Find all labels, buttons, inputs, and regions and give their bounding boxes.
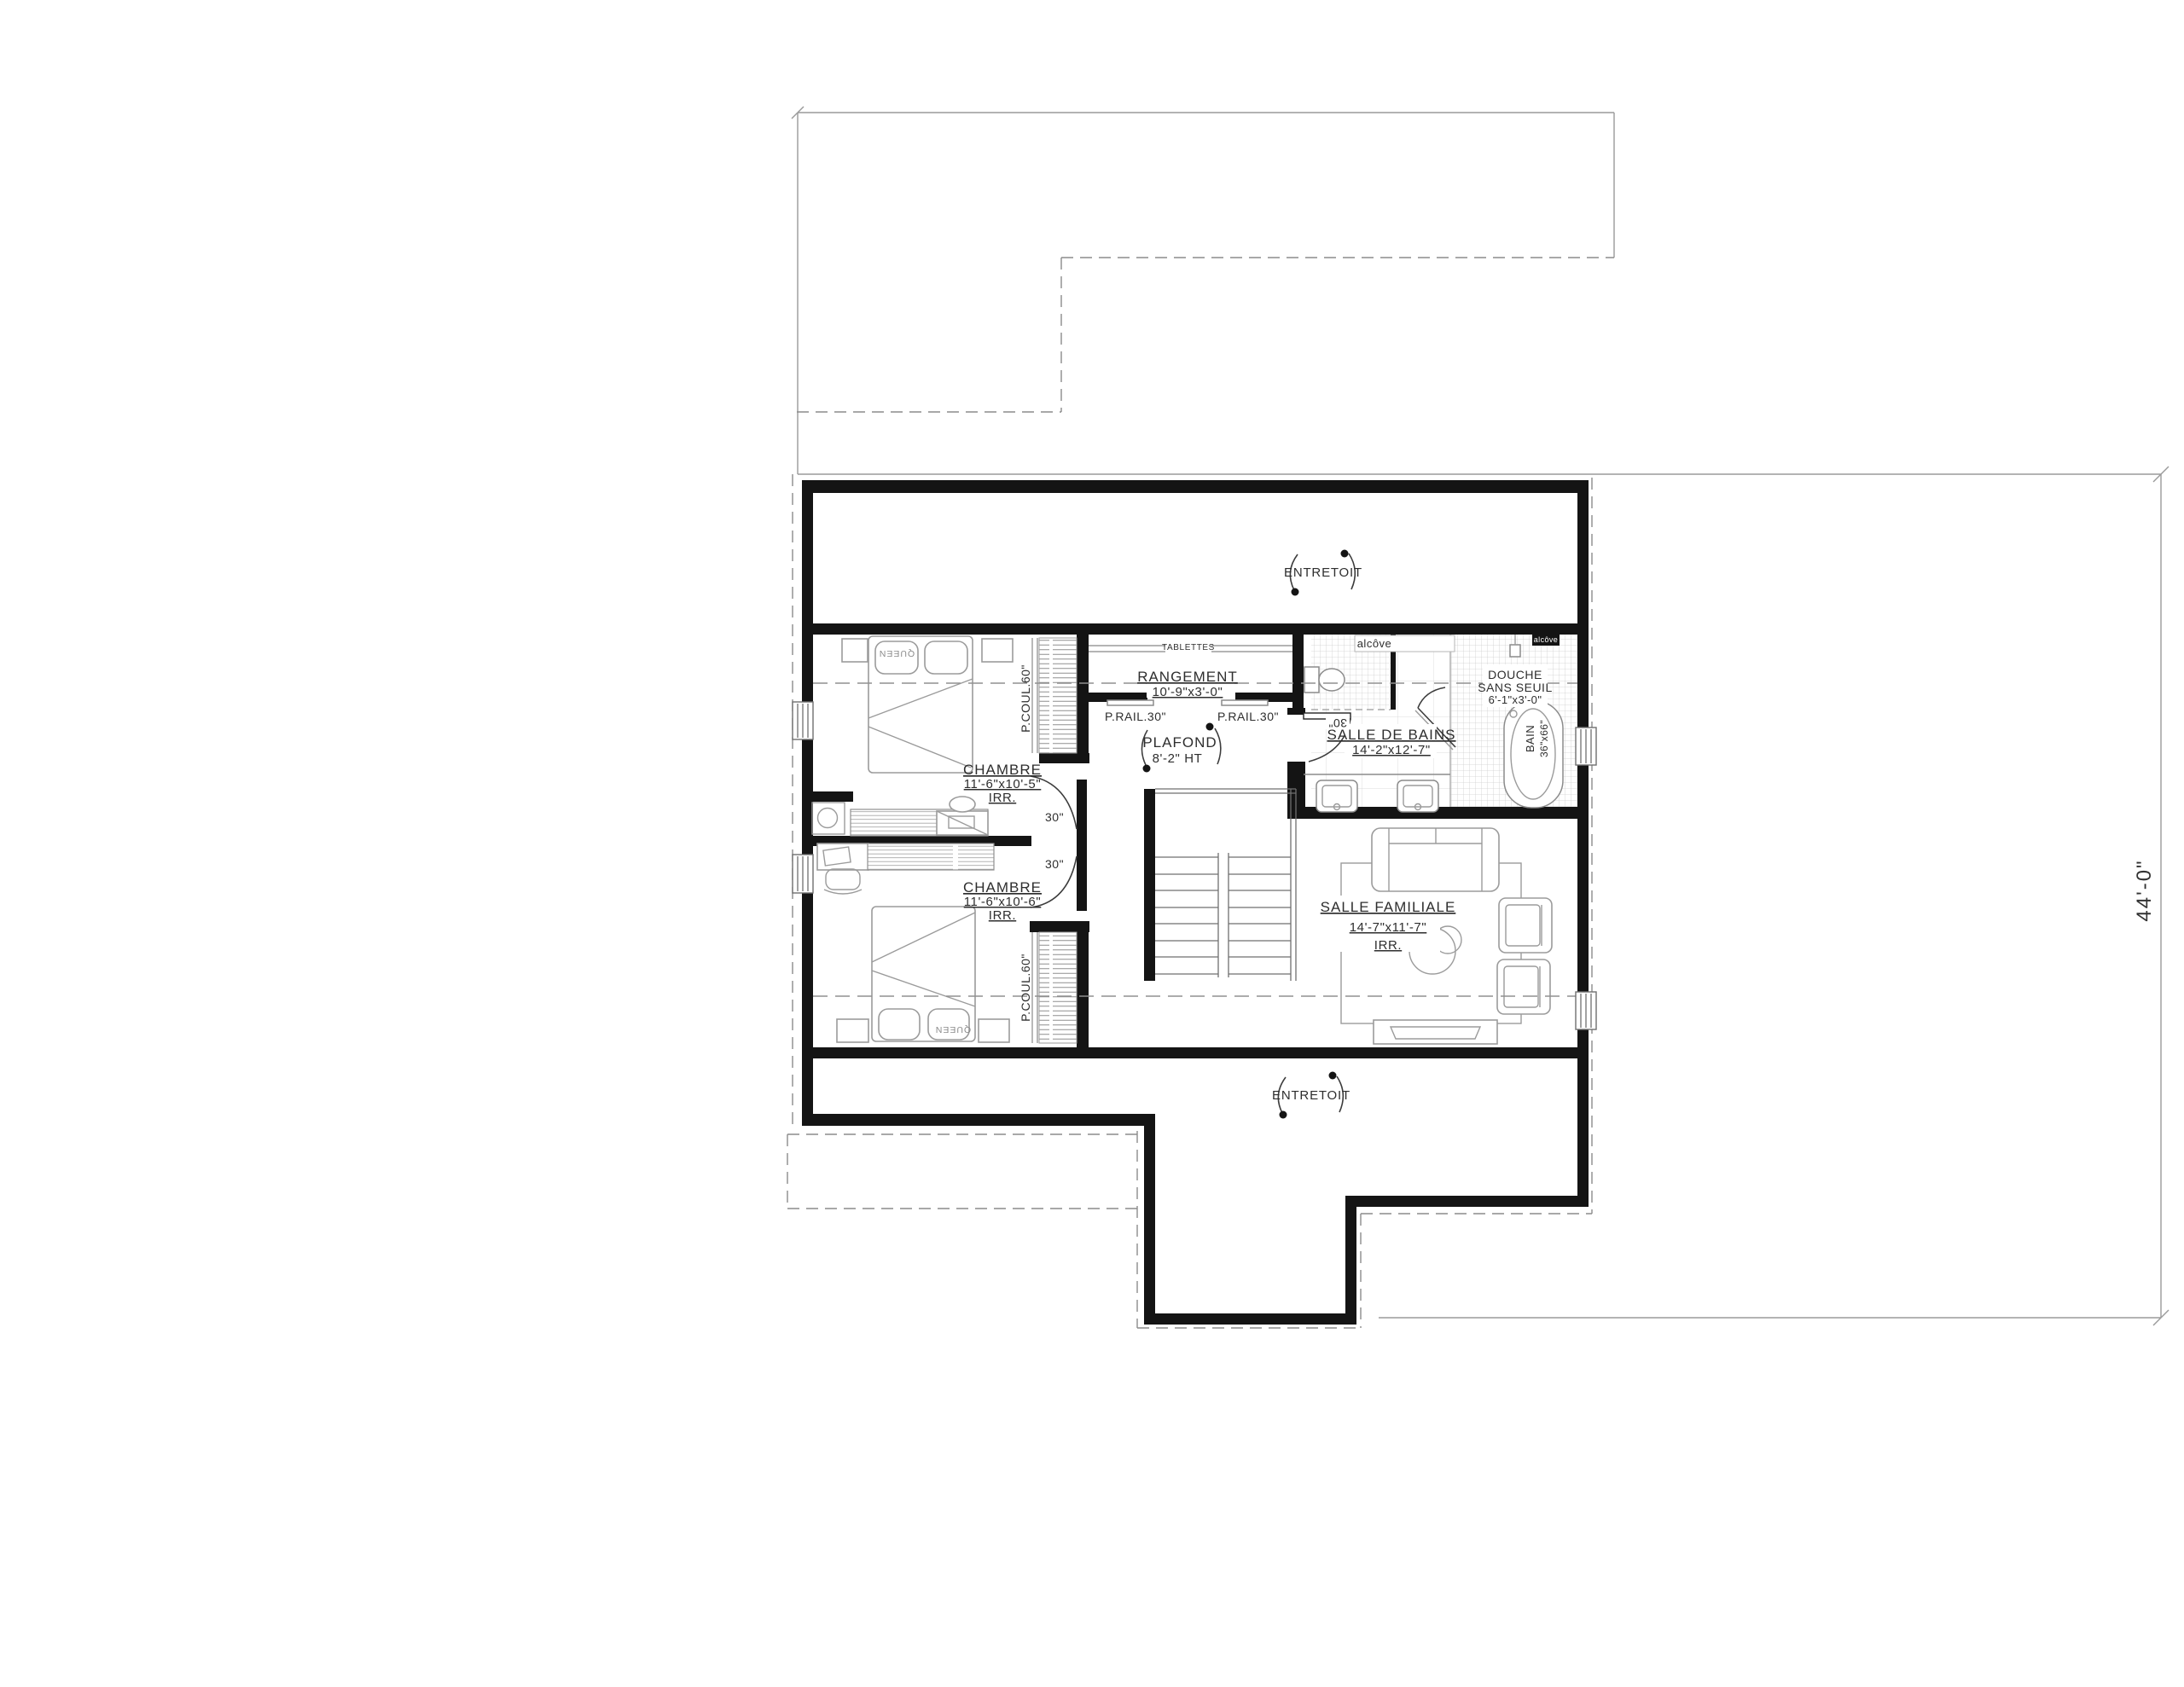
- bedroom1-irr: IRR.: [989, 791, 1016, 805]
- tv-console: [1374, 1020, 1497, 1044]
- storage-name: RANGEMENT: [1137, 669, 1238, 685]
- jamb-bathroom-top: [1287, 708, 1305, 715]
- bedroom2-dims: 11'-6"x10'-6": [964, 895, 1042, 909]
- shelf-label: TABLETTES: [1162, 643, 1215, 652]
- window-family-room: [1576, 992, 1596, 1029]
- shower-line2: SANS SEUIL: [1478, 681, 1552, 694]
- bed1-nightstand-left: [842, 639, 868, 662]
- window-bathroom: [1576, 728, 1596, 765]
- closet2-hanging: [1039, 932, 1077, 1043]
- bed2-label: QUEEN: [935, 1024, 971, 1035]
- bed2-pillow-left: [879, 1009, 920, 1040]
- wall-protrusion-left: [1144, 1114, 1155, 1325]
- dot: [1292, 588, 1299, 596]
- rail-left-label: P.RAIL.30": [1105, 710, 1166, 723]
- closet-bedroom2: [1032, 932, 1077, 1043]
- rail-right-label: P.RAIL.30": [1217, 710, 1279, 723]
- bedroom-niche: [812, 803, 845, 834]
- wall-closet1-right: [1077, 623, 1089, 763]
- door-leaf-strip-bedrooms: [1077, 780, 1087, 911]
- stair-treads-left: [1155, 857, 1218, 974]
- wall-left-jog: [802, 791, 853, 802]
- alcove-label: alcôve: [1357, 637, 1392, 650]
- closet2-label: P.COUL.60": [1019, 954, 1032, 1022]
- shower-dims: 6'-1"x3'-0": [1489, 693, 1542, 706]
- bathroom-dims: 14'-2"x12'-7": [1352, 743, 1431, 757]
- window-bedroom2: [793, 855, 813, 893]
- walls: [802, 480, 1589, 1325]
- wall-bottom-interior: [813, 1047, 1577, 1058]
- alcove-tag-text: alcôve: [1534, 635, 1558, 644]
- bedroom2-furniture: [817, 843, 1009, 1042]
- staircase: [1155, 789, 1296, 981]
- bedroom2-door-label: 30": [1045, 857, 1064, 871]
- wall-protrusion-bottom: [1144, 1313, 1356, 1325]
- bedroom2-dresser: [868, 843, 994, 870]
- closet1-label: P.COUL.60": [1019, 664, 1032, 733]
- shower-line1: DOUCHE: [1488, 668, 1542, 681]
- toilet-tank: [1304, 667, 1319, 693]
- bed2-nightstand-left: [837, 1019, 868, 1042]
- family-room-dims: 14'-7"x11'-7": [1350, 920, 1427, 935]
- wall-bottom-left: [802, 1114, 1155, 1126]
- stair-treads-right: [1228, 857, 1291, 974]
- bedroom1-dims: 11'-6"x10'-5": [964, 777, 1042, 791]
- bedroom1-lamp: [950, 797, 975, 812]
- attic-bottom-text: ENTRETOIT: [1272, 1088, 1350, 1103]
- floor-plan-svg: ENTRETOIT ENTRETOIT PLAFOND 8'-2" HT RAN…: [0, 0, 2184, 1687]
- bed1-pillow-right: [925, 641, 967, 674]
- wall-step-right: [1345, 1196, 1589, 1207]
- closet1-hanging: [1039, 638, 1077, 753]
- bed1-label: QUEEN: [879, 648, 915, 658]
- toilet-bowl: [1319, 669, 1345, 691]
- tub-dims: 36"x66": [1538, 720, 1550, 757]
- shower-head: [1510, 645, 1520, 657]
- niche-stool: [818, 809, 838, 828]
- ceiling-text: PLAFOND: [1142, 734, 1217, 751]
- bed2-nightstand-right: [979, 1019, 1009, 1042]
- closet-rail-left: [1107, 700, 1153, 705]
- ceiling-height-text: 8'-2" HT: [1153, 751, 1203, 766]
- ceiling-label: PLAFOND 8'-2" HT: [1141, 723, 1220, 773]
- bathroom-door-label: 30": [1328, 716, 1347, 730]
- family-room-irr: IRR.: [1374, 938, 1402, 953]
- wall-protrusion-right: [1345, 1196, 1356, 1325]
- dot: [1143, 765, 1151, 773]
- bedroom2-irr: IRR.: [989, 908, 1016, 923]
- dot: [1341, 550, 1349, 558]
- dot: [1206, 723, 1214, 731]
- wall-right: [1577, 480, 1589, 1207]
- family-room-name: SALLE FAMILIALE: [1321, 899, 1456, 915]
- dot: [1280, 1111, 1287, 1119]
- floor-plan-sheet: ENTRETOIT ENTRETOIT PLAFOND 8'-2" HT RAN…: [0, 0, 2184, 1687]
- bedroom2-chair: [826, 869, 860, 890]
- closet-rail-right: [1222, 700, 1268, 705]
- storage-dims: 10'-9"x3'-0": [1153, 685, 1223, 699]
- wall-stair-left: [1144, 789, 1155, 981]
- window-bedroom1: [793, 702, 813, 739]
- tub-name: BAIN: [1524, 725, 1536, 752]
- attic-top-label: ENTRETOIT: [1284, 550, 1362, 596]
- wall-left: [802, 480, 813, 1126]
- bedroom1-furniture: [812, 636, 1013, 836]
- attic-bottom-label: ENTRETOIT: [1272, 1072, 1350, 1119]
- overall-height-dimension: 44'-0": [2133, 859, 2156, 921]
- bedroom1-door-label: 30": [1045, 810, 1064, 824]
- jamb-bathroom-bottom: [1287, 762, 1305, 772]
- attic-top-text: ENTRETOIT: [1284, 565, 1362, 580]
- wall-bathroom-left-upper: [1292, 623, 1304, 708]
- wall-attic-interior: [813, 623, 1577, 635]
- bedroom1-name: CHAMBRE: [963, 762, 1042, 778]
- bedroom2-name: CHAMBRE: [963, 879, 1042, 896]
- wall-top: [802, 480, 1589, 493]
- bedroom2-chair-back: [824, 890, 862, 894]
- closet-bedroom1: [1032, 638, 1077, 753]
- bed1-nightstand-right: [982, 639, 1013, 662]
- dot: [1329, 1072, 1337, 1080]
- wall-closet2-right: [1077, 921, 1089, 1058]
